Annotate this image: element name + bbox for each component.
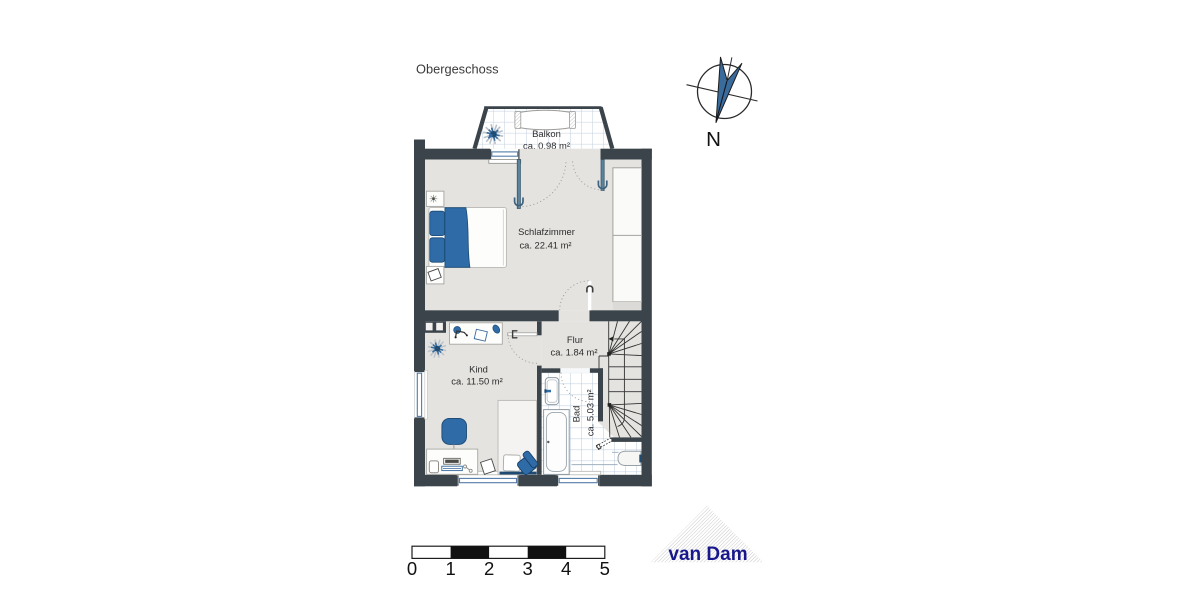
svg-text:Bad: Bad — [571, 406, 582, 423]
svg-text:N: N — [706, 128, 721, 151]
svg-text:1: 1 — [445, 558, 455, 579]
svg-text:2: 2 — [484, 558, 494, 579]
svg-text:3: 3 — [523, 558, 533, 579]
svg-text:Balkon: Balkon — [532, 128, 561, 139]
svg-text:Flur: Flur — [567, 334, 583, 345]
svg-text:ca. 11.50 m²: ca. 11.50 m² — [451, 376, 502, 387]
svg-text:0: 0 — [407, 558, 417, 579]
svg-text:5: 5 — [600, 558, 610, 579]
svg-text:Obergeschoss: Obergeschoss — [416, 62, 499, 77]
svg-text:ca. 22.41 m²: ca. 22.41 m² — [519, 239, 571, 250]
svg-text:ca. 5.03 m²: ca. 5.03 m² — [584, 389, 595, 436]
svg-text:Schlafzimmer: Schlafzimmer — [518, 226, 575, 237]
svg-text:4: 4 — [561, 558, 571, 579]
svg-text:van Dam: van Dam — [668, 544, 747, 565]
svg-text:Kind: Kind — [469, 363, 488, 374]
svg-text:ca. 1.84 m²: ca. 1.84 m² — [551, 346, 598, 357]
